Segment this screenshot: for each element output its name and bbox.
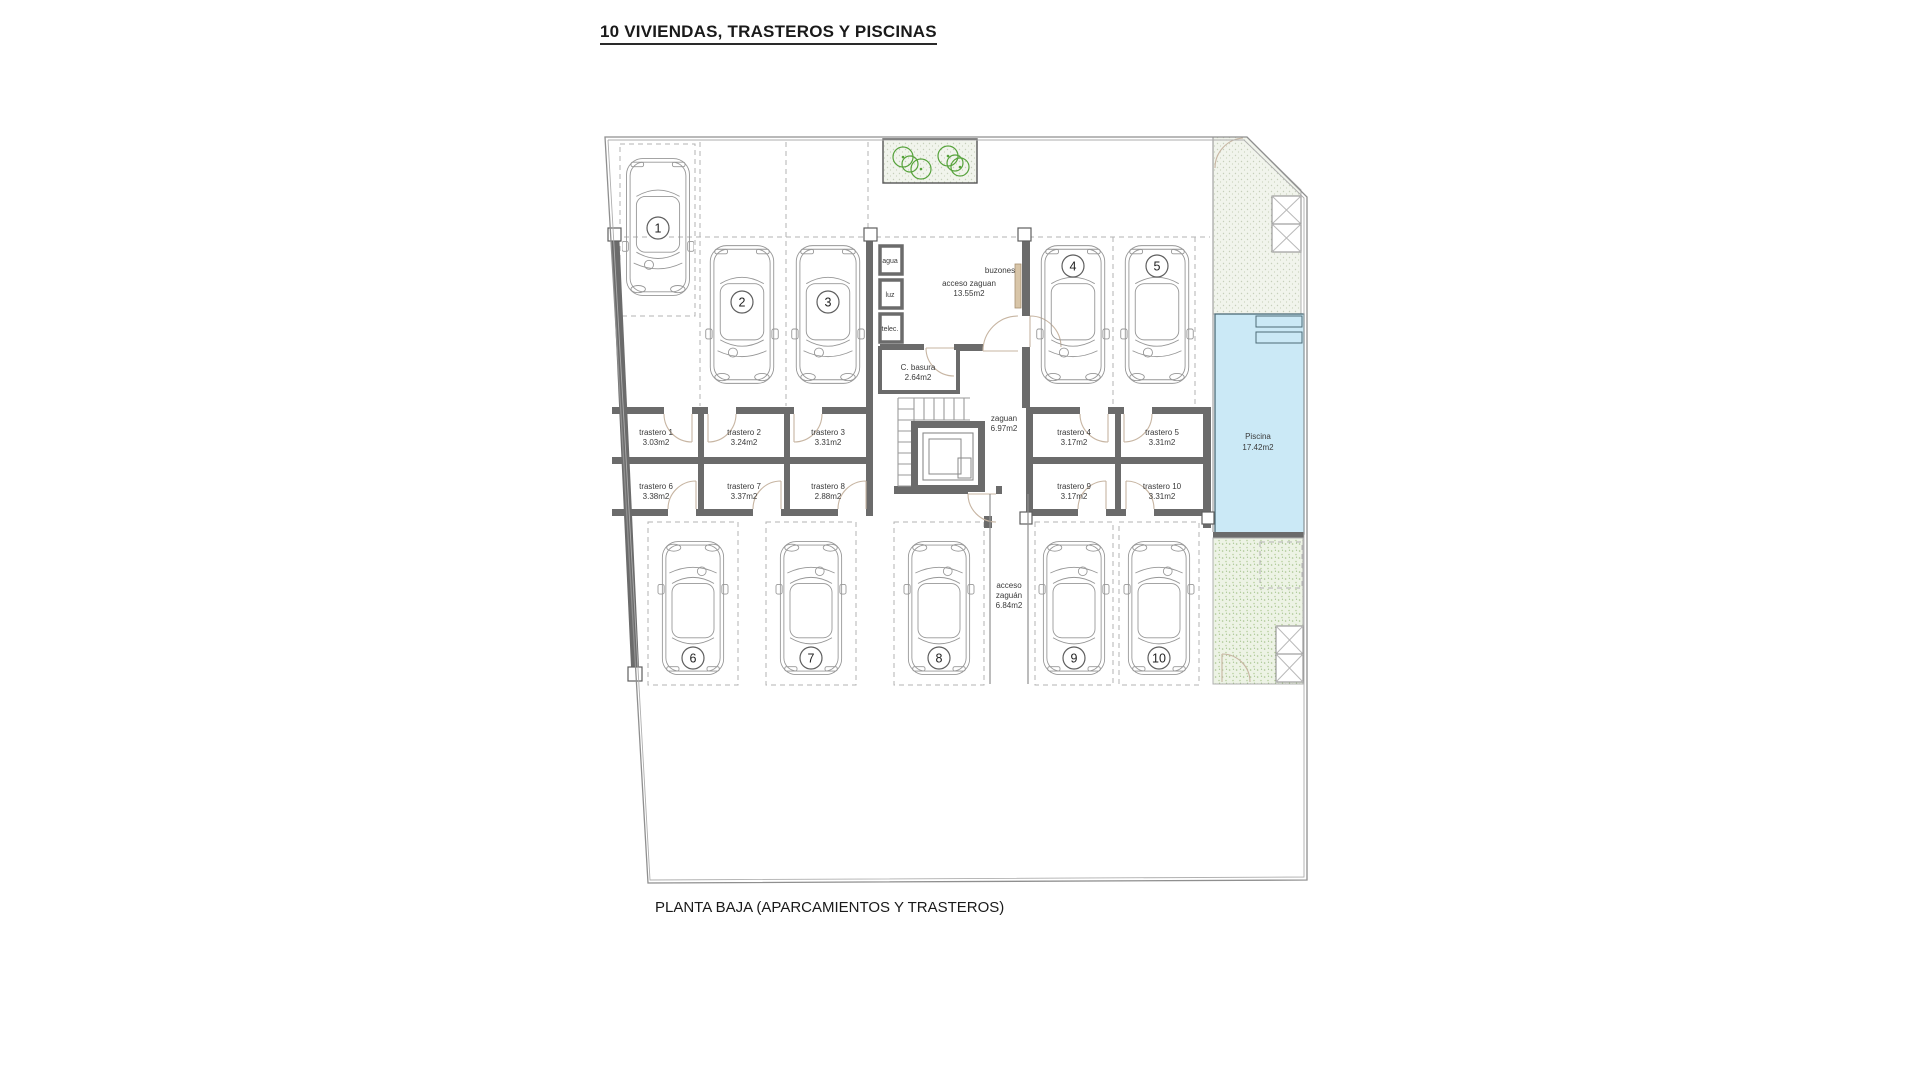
svg-text:4: 4	[1070, 260, 1077, 274]
svg-text:7: 7	[808, 652, 815, 666]
elevator	[911, 421, 985, 492]
pool	[1215, 314, 1304, 534]
svg-text:6: 6	[690, 652, 697, 666]
car-2	[706, 246, 779, 384]
trastero-9-label: trastero 93.17m2	[1057, 482, 1091, 501]
acceso-zaguan-label: acceso zaguan13.55m2	[942, 279, 996, 298]
c-basura-label: C. basura2.64m2	[901, 363, 936, 382]
floor-plan-drawing: 1 2 3 4 5 6 7 8 9 10 trastero 13.03m2 tr…	[598, 136, 1314, 890]
planter	[883, 139, 977, 183]
trastero-2-label: trastero 23.24m2	[727, 428, 761, 447]
floor-plan-page: { "title": "10 VIVIENDAS, TRASTEROS Y PI…	[0, 0, 1920, 1080]
parking-spot-3: 3	[817, 291, 839, 313]
parking-spot-5: 5	[1146, 255, 1168, 277]
parking-spot-1: 1	[647, 217, 669, 239]
pool-step	[1256, 332, 1302, 343]
trastero-7-label: trastero 73.37m2	[727, 482, 761, 501]
parking-spot-8: 8	[928, 647, 950, 669]
trastero-4-label: trastero 43.17m2	[1057, 428, 1091, 447]
svg-text:8: 8	[936, 652, 943, 666]
trastero-1-label: trastero 13.03m2	[639, 428, 673, 447]
utility-xbox-bottom	[1276, 626, 1303, 682]
trastero-8-label: trastero 82.88m2	[811, 482, 845, 501]
agua-label: agua	[882, 258, 898, 265]
svg-text:5: 5	[1154, 260, 1161, 274]
utility-xbox-top	[1272, 196, 1301, 252]
car-3	[792, 246, 865, 384]
luz-label: luz	[886, 292, 895, 299]
pool-step	[1256, 316, 1302, 327]
parking-spot-2: 2	[731, 291, 753, 313]
trastero-3-label: trastero 33.31m2	[811, 428, 845, 447]
telec-label: telec.	[882, 326, 899, 333]
parking-spot-6: 6	[682, 647, 704, 669]
trastero-10-label: trastero 103.31m2	[1143, 482, 1182, 501]
svg-text:9: 9	[1071, 652, 1078, 666]
trastero-6-label: trastero 63.38m2	[639, 482, 673, 501]
svg-text:10: 10	[1152, 652, 1166, 666]
acceso-zaguan-lower-label: accesozaguán6.84m2	[996, 581, 1023, 610]
plan-caption: PLANTA BAJA (APARCAMIENTOS Y TRASTEROS)	[655, 899, 1004, 916]
parking-spot-4: 4	[1062, 255, 1084, 277]
svg-text:1: 1	[655, 222, 662, 236]
parking-spot-7: 7	[800, 647, 822, 669]
pool-south-wall	[1213, 532, 1304, 538]
mailboxes-panel	[1015, 264, 1021, 308]
zaguan-label: zaguan6.97m2	[991, 414, 1018, 433]
parking-spot-9: 9	[1063, 647, 1085, 669]
svg-text:3: 3	[825, 296, 832, 310]
trastero-5-label: trastero 53.31m2	[1145, 428, 1179, 447]
page-title: 10 VIVIENDAS, TRASTEROS Y PISCINAS	[600, 22, 937, 45]
buzones-label: buzones	[985, 266, 1015, 275]
svg-text:2: 2	[739, 296, 746, 310]
parking-spot-10: 10	[1148, 647, 1170, 669]
